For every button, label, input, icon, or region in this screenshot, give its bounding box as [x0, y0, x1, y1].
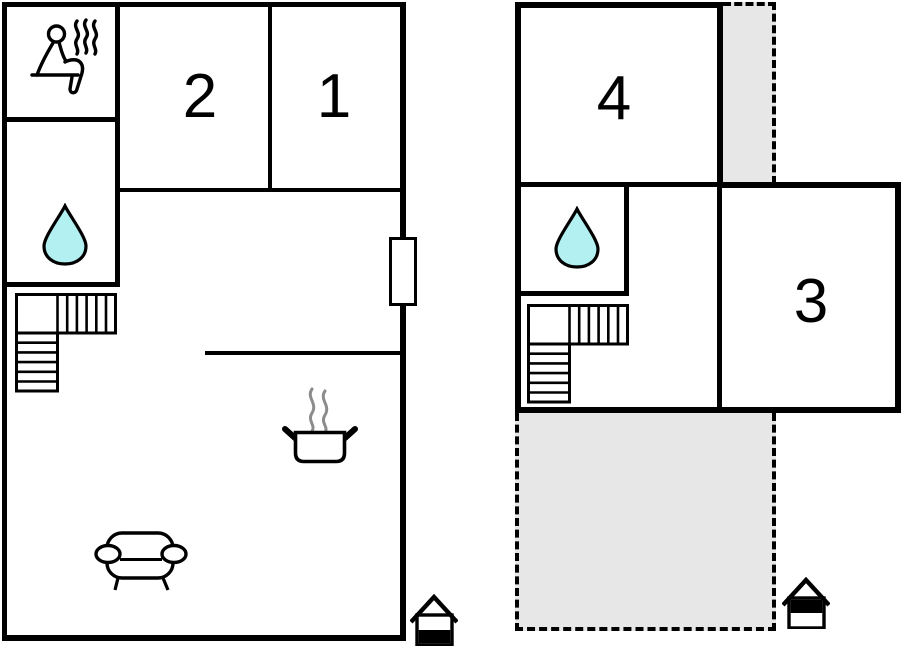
- water-drop-icon: [551, 206, 603, 270]
- interior-wall-hall-room3-divider: [717, 188, 722, 407]
- outer-wall-left: [515, 2, 521, 413]
- floor-plan-canvas: 2 1: [0, 0, 905, 652]
- outer-wall-bottom: [515, 407, 901, 413]
- upper-floor-plan: 4 3: [0, 0, 905, 652]
- room-3-top-wall: [717, 182, 901, 188]
- room-4-label: 4: [597, 68, 631, 130]
- interior-wall-bath-right: [624, 187, 629, 296]
- upper-floor-indicator-icon: [782, 577, 830, 629]
- upper-terrace: [723, 2, 776, 184]
- outer-wall-top: [515, 2, 723, 8]
- interior-wall-room4-bottom: [521, 182, 717, 187]
- stairs-icon: [527, 304, 629, 404]
- interior-wall-bath-bottom: [521, 291, 629, 296]
- outer-wall-right: [895, 182, 901, 413]
- room-3-label: 3: [794, 271, 828, 333]
- room-4-right-wall: [717, 2, 723, 188]
- lower-terrace: [515, 413, 776, 631]
